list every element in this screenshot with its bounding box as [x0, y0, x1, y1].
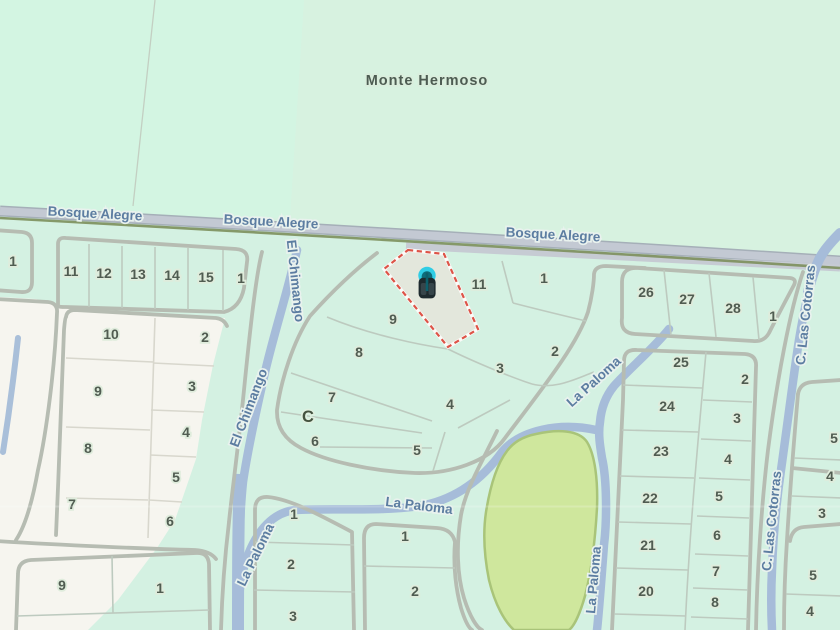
svg-text:7: 7: [68, 496, 76, 512]
svg-text:1: 1: [769, 308, 777, 324]
svg-text:3: 3: [289, 608, 297, 624]
svg-text:2: 2: [741, 371, 749, 387]
svg-text:1: 1: [156, 580, 164, 596]
svg-text:1: 1: [9, 253, 17, 269]
svg-text:20: 20: [638, 583, 654, 599]
svg-text:4: 4: [724, 451, 732, 467]
svg-text:2: 2: [551, 343, 559, 359]
svg-text:15: 15: [198, 269, 214, 285]
svg-text:1: 1: [540, 270, 548, 286]
svg-text:2: 2: [287, 556, 295, 572]
svg-text:8: 8: [711, 594, 719, 610]
svg-text:3: 3: [733, 410, 741, 426]
svg-text:4: 4: [446, 396, 454, 412]
svg-text:2: 2: [201, 329, 209, 345]
svg-text:7: 7: [712, 563, 720, 579]
svg-text:8: 8: [355, 344, 363, 360]
svg-text:7: 7: [328, 389, 336, 405]
svg-text:5: 5: [715, 488, 723, 504]
svg-text:9: 9: [389, 311, 397, 327]
svg-text:3: 3: [496, 360, 504, 376]
svg-text:27: 27: [679, 291, 695, 307]
svg-text:21: 21: [640, 537, 656, 553]
svg-text:C: C: [302, 408, 314, 426]
svg-text:2: 2: [411, 583, 419, 599]
svg-text:6: 6: [311, 433, 319, 449]
svg-text:4: 4: [826, 468, 834, 484]
svg-text:28: 28: [725, 300, 741, 316]
svg-text:1: 1: [401, 528, 409, 544]
svg-text:5: 5: [830, 430, 838, 446]
svg-text:4: 4: [182, 424, 190, 440]
svg-text:5: 5: [413, 442, 421, 458]
svg-text:13: 13: [130, 266, 146, 282]
svg-text:10: 10: [103, 326, 119, 342]
svg-text:5: 5: [809, 567, 817, 583]
svg-text:6: 6: [713, 527, 721, 543]
svg-text:24: 24: [659, 398, 675, 414]
svg-text:25: 25: [673, 354, 689, 370]
svg-text:9: 9: [58, 577, 66, 593]
svg-text:11: 11: [472, 276, 487, 292]
svg-text:11: 11: [64, 263, 79, 279]
svg-text:12: 12: [96, 265, 112, 281]
svg-text:5: 5: [172, 469, 180, 485]
svg-text:14: 14: [164, 267, 180, 283]
svg-text:22: 22: [642, 490, 658, 506]
svg-text:9: 9: [94, 383, 102, 399]
svg-text:1: 1: [290, 506, 298, 522]
svg-text:26: 26: [638, 284, 654, 300]
svg-text:1: 1: [237, 270, 245, 286]
svg-text:8: 8: [84, 440, 92, 456]
svg-text:4: 4: [806, 603, 814, 619]
svg-text:Monte Hermoso: Monte Hermoso: [366, 73, 489, 89]
svg-text:3: 3: [188, 378, 196, 394]
svg-text:6: 6: [166, 513, 174, 529]
svg-text:23: 23: [653, 443, 669, 459]
